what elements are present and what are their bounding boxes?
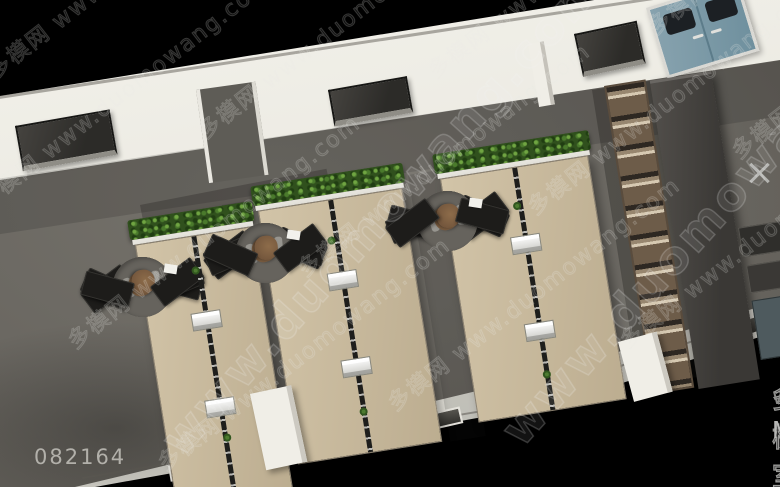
wire-tray: [524, 320, 556, 342]
door-handle: [692, 33, 703, 39]
wire-tray: [510, 233, 542, 255]
office-render-scene: 多模网 www.duomowang.com 多模网 www.duomowang.…: [0, 0, 780, 487]
paper-sheet: [287, 229, 301, 240]
dark-desk: [746, 259, 780, 294]
paper-sheet: [469, 197, 483, 208]
wire-tray: [190, 309, 222, 331]
render-id-text: 082164: [34, 445, 126, 469]
door-handle: [711, 28, 722, 34]
model-id-text: 模型ID: M0088896: [772, 384, 780, 444]
door-window: [704, 0, 739, 23]
wire-tray: [340, 356, 372, 378]
